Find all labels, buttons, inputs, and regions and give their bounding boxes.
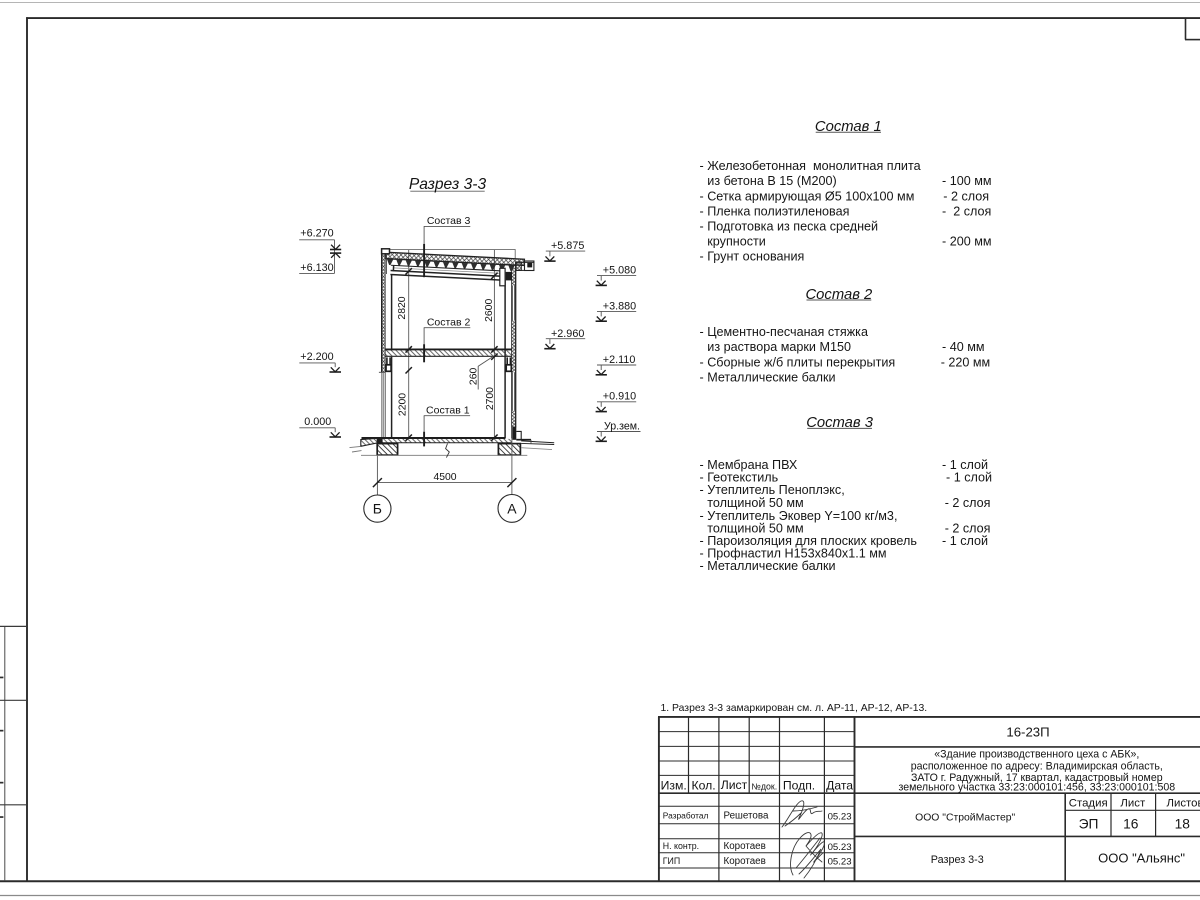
svg-text:«Здание производственного цеха: «Здание производственного цеха с АБК», [934,749,1139,761]
svg-text:из бетона В 15 (М200): из бетона В 15 (М200) [707,174,836,188]
svg-text:Коротаев: Коротаев [724,856,766,867]
svg-text:- 2 слоя: - 2 слоя [943,190,989,204]
svg-text:Лист: Лист [721,778,748,792]
svg-text:земельного участка 33:23:00010: земельного участка 33:23:000101:456, 33:… [898,782,1175,794]
svg-text:Разрез 3-3: Разрез 3-3 [931,854,984,866]
svg-text:2700: 2700 [485,387,496,410]
svg-text:05.23: 05.23 [828,842,852,853]
svg-text:ЭП: ЭП [1079,816,1099,831]
svg-text:Состав 3: Состав 3 [427,215,471,227]
svg-text:крупности: крупности [707,235,766,249]
svg-text:Состав 1: Состав 1 [426,404,470,416]
svg-text:18: 18 [1175,816,1191,831]
svg-text:- 1 слой: - 1 слой [946,471,992,485]
svg-text:- Подготовка из песка средней: - Подготовка из песка средней [700,220,879,234]
svg-text:+2.960: +2.960 [551,328,584,340]
svg-text:толщиной 50 мм: толщиной 50 мм [707,496,803,510]
svg-text:16: 16 [1123,816,1139,831]
svg-text:А: А [507,500,517,516]
svg-text:расположенное по адресу: Влади: расположенное по адресу: Владимирская об… [911,760,1163,772]
svg-text:Изм.: Изм. [661,779,687,793]
svg-text:Кол.: Кол. [692,779,716,793]
svg-text:2600: 2600 [484,299,495,322]
svg-text:05.23: 05.23 [828,811,852,822]
svg-text:- Сборные ж/б плиты перекрытия: - Сборные ж/б плиты перекрытия [700,355,896,369]
svg-text:Лист: Лист [1120,797,1146,809]
svg-text:2820: 2820 [397,296,408,319]
svg-text:Подп.: Подп. [783,779,815,793]
svg-text:+2.200: +2.200 [300,351,333,363]
svg-text:+5.080: +5.080 [603,265,636,277]
svg-text:- 200 мм: - 200 мм [942,235,992,249]
svg-text:- Грунт основания: - Грунт основания [700,250,805,264]
svg-text:- Пленка полиэтиленовая: - Пленка полиэтиленовая [700,205,850,219]
svg-text:Стадия: Стадия [1069,797,1108,809]
svg-text:+2.110: +2.110 [603,354,636,366]
svg-text:- Железобетонная монолитная п: - Железобетонная монолитная плита [700,159,921,173]
svg-text:0.000: 0.000 [304,416,331,428]
svg-text:из раствора марки М150: из раствора марки М150 [707,340,851,354]
svg-text:260: 260 [469,368,480,386]
svg-text:- 40 мм: - 40 мм [942,340,985,354]
svg-text:№док.: №док. [751,782,777,792]
svg-text:+6.130: +6.130 [300,262,333,274]
svg-text:Дата: Дата [826,779,853,793]
svg-text:Разрез 3-3: Разрез 3-3 [409,176,487,193]
svg-text:+5.875: +5.875 [551,240,584,252]
svg-text:Б: Б [373,501,382,517]
svg-text:+6.270: +6.270 [300,228,333,240]
svg-text:- 100 мм: - 100 мм [942,174,992,188]
svg-text:- 2 слоя: - 2 слоя [942,205,991,219]
svg-text:Коротаев: Коротаев [724,841,766,852]
svg-text:ООО "СтройМастер": ООО "СтройМастер" [915,813,1015,824]
svg-text:+0.910: +0.910 [603,391,636,403]
svg-text:Н. контр.: Н. контр. [663,841,699,851]
svg-text:Листов: Листов [1166,797,1200,809]
svg-text:1. Разрез 3-3 замаркирован см.: 1. Разрез 3-3 замаркирован см. л. АР-11,… [661,703,928,714]
svg-text:- 2 слоя: - 2 слоя [945,496,991,510]
svg-text:+3.880: +3.880 [603,300,636,312]
svg-text:2200: 2200 [397,393,408,416]
svg-text:Ур.зем.: Ур.зем. [604,421,640,433]
svg-text:- 220 мм: - 220 мм [941,355,991,369]
svg-text:16-23П: 16-23П [1006,725,1049,740]
svg-text:- Цементно-песчаная стяжка: - Цементно-песчаная стяжка [700,325,868,339]
svg-text:Разработал: Разработал [663,810,709,820]
svg-text:ГИП: ГИП [663,856,680,866]
svg-text:Состав 2: Состав 2 [427,316,471,328]
svg-text:Решетова: Решетова [724,810,769,821]
svg-text:ООО "Альянс": ООО "Альянс" [1098,851,1185,866]
svg-text:- Сетка армирующая Ø5 100х100: - Сетка армирующая Ø5 100х100 мм [700,190,915,204]
svg-text:05.23: 05.23 [828,857,852,868]
svg-text:- 1 слой: - 1 слой [942,534,988,548]
svg-text:4500: 4500 [433,472,456,483]
svg-text:- Металлические балки: - Металлические балки [700,559,836,573]
svg-text:- Металлические балки: - Металлические балки [700,371,836,385]
